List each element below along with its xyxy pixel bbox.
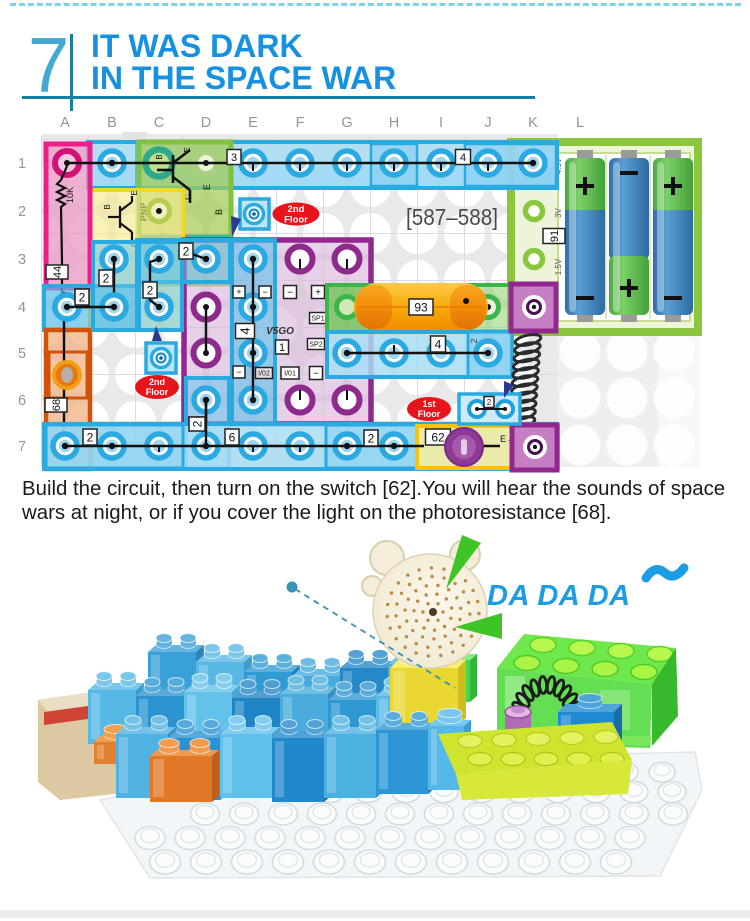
- svg-text:DA DA DA: DA DA DA: [487, 580, 631, 612]
